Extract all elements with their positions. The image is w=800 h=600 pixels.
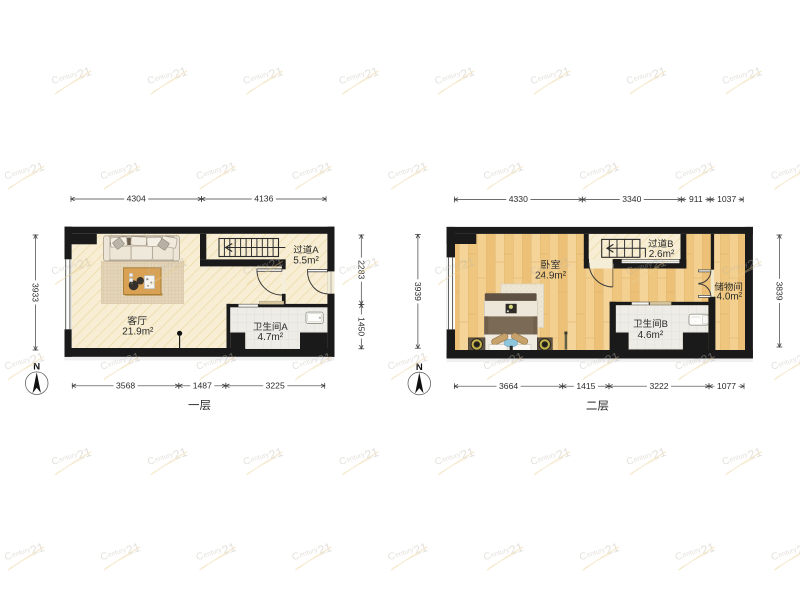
svg-text:B: B (662, 319, 668, 330)
svg-text:3225: 3225 (266, 381, 285, 391)
svg-text:21.9m²: 21.9m² (122, 327, 154, 338)
svg-text:1415: 1415 (576, 381, 595, 391)
svg-text:5.5m²: 5.5m² (293, 256, 319, 267)
svg-text:3664: 3664 (499, 381, 518, 391)
svg-text:4.7m²: 4.7m² (258, 332, 284, 343)
svg-text:3222: 3222 (649, 381, 668, 391)
svg-text:4.0m²: 4.0m² (717, 291, 743, 302)
svg-text:3568: 3568 (116, 381, 135, 391)
svg-text:3939: 3939 (413, 282, 423, 301)
svg-text:3933: 3933 (31, 283, 41, 302)
svg-text:1450: 1450 (356, 317, 366, 336)
svg-text:4.6m²: 4.6m² (638, 330, 664, 341)
svg-text:4136: 4136 (254, 194, 273, 204)
svg-text:911: 911 (689, 194, 703, 204)
svg-text:3340: 3340 (622, 194, 641, 204)
svg-text:3839: 3839 (775, 281, 785, 300)
svg-text:1487: 1487 (193, 381, 212, 391)
svg-text:1037: 1037 (717, 194, 736, 204)
svg-text:1077: 1077 (717, 381, 736, 391)
svg-text:4330: 4330 (509, 194, 528, 204)
svg-text:A: A (312, 245, 319, 256)
svg-text:4304: 4304 (127, 194, 146, 204)
